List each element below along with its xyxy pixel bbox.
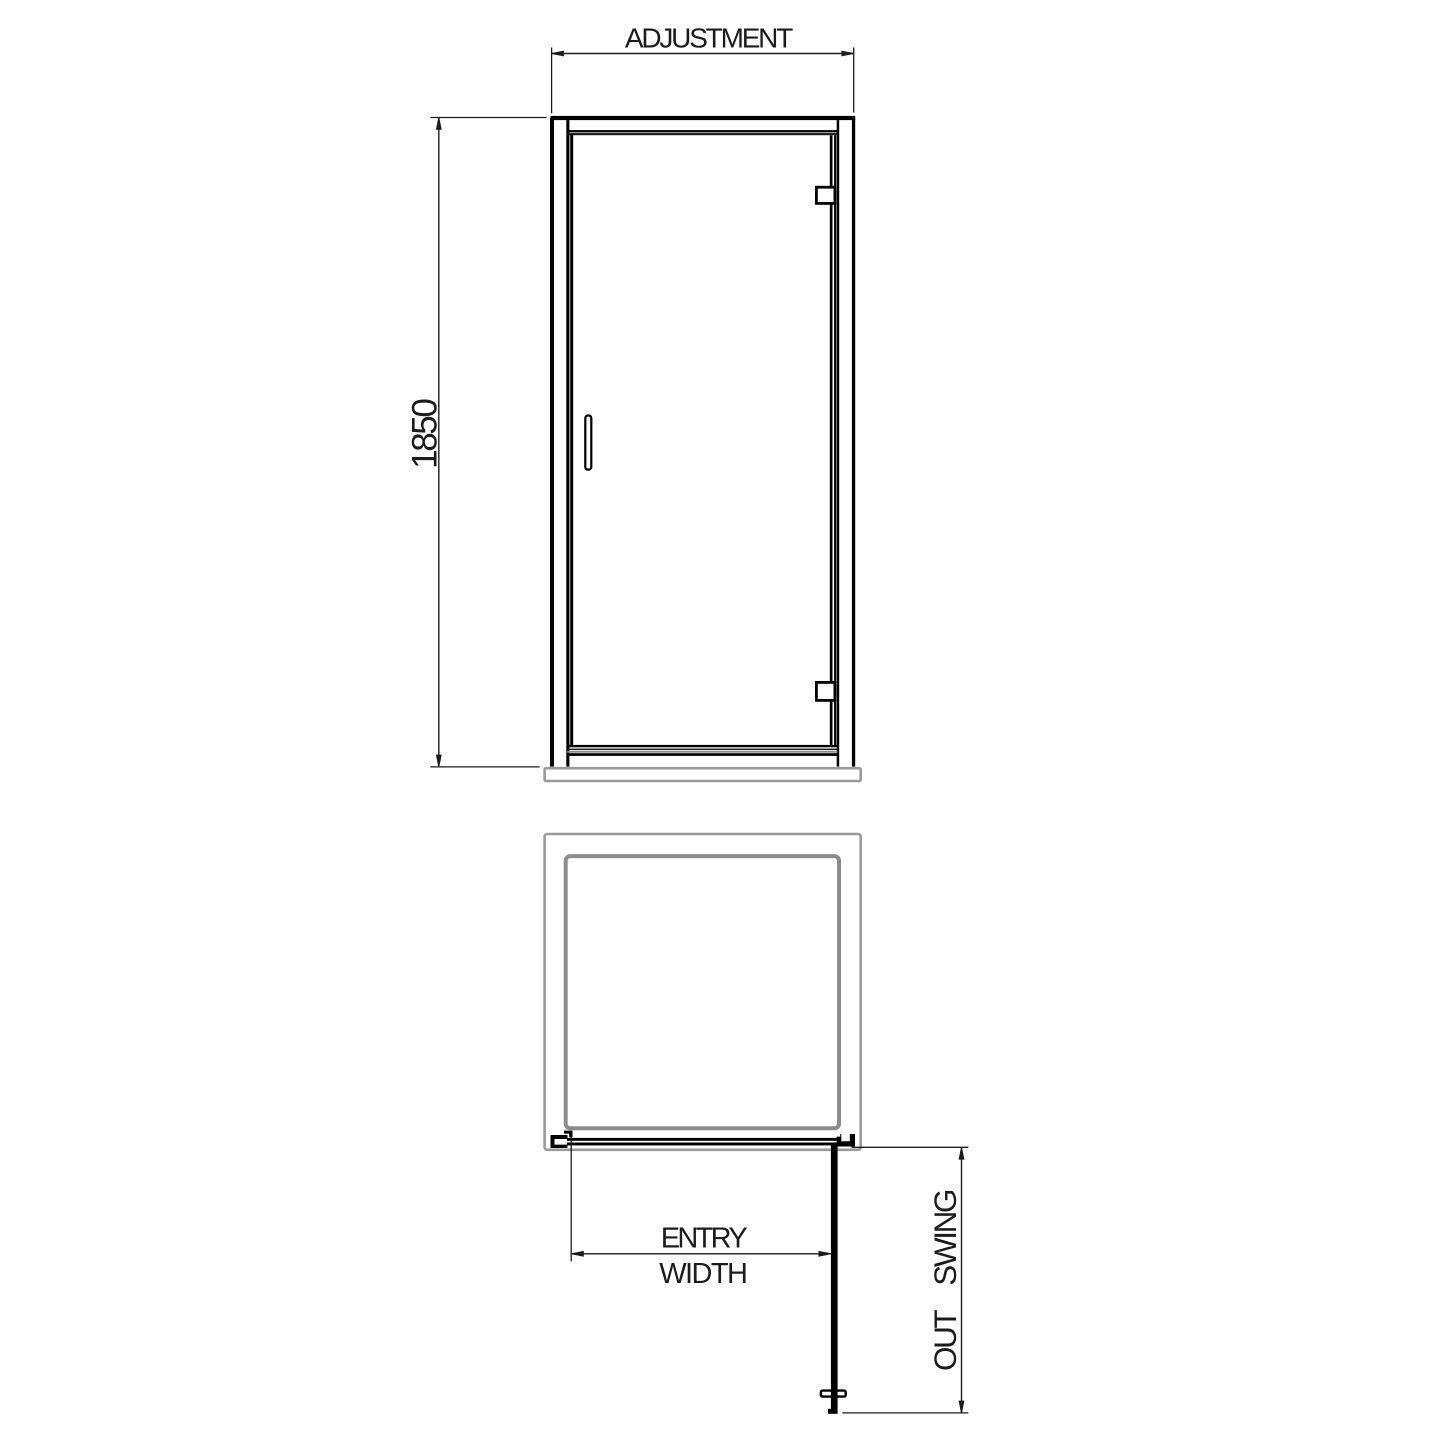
svg-text:WIDTH: WIDTH bbox=[659, 1258, 746, 1290]
svg-text:ADJUSTMENT: ADJUSTMENT bbox=[625, 23, 793, 54]
svg-text:OUTSWING: OUTSWING bbox=[927, 1190, 963, 1371]
svg-text:ENTRY: ENTRY bbox=[661, 1223, 748, 1255]
